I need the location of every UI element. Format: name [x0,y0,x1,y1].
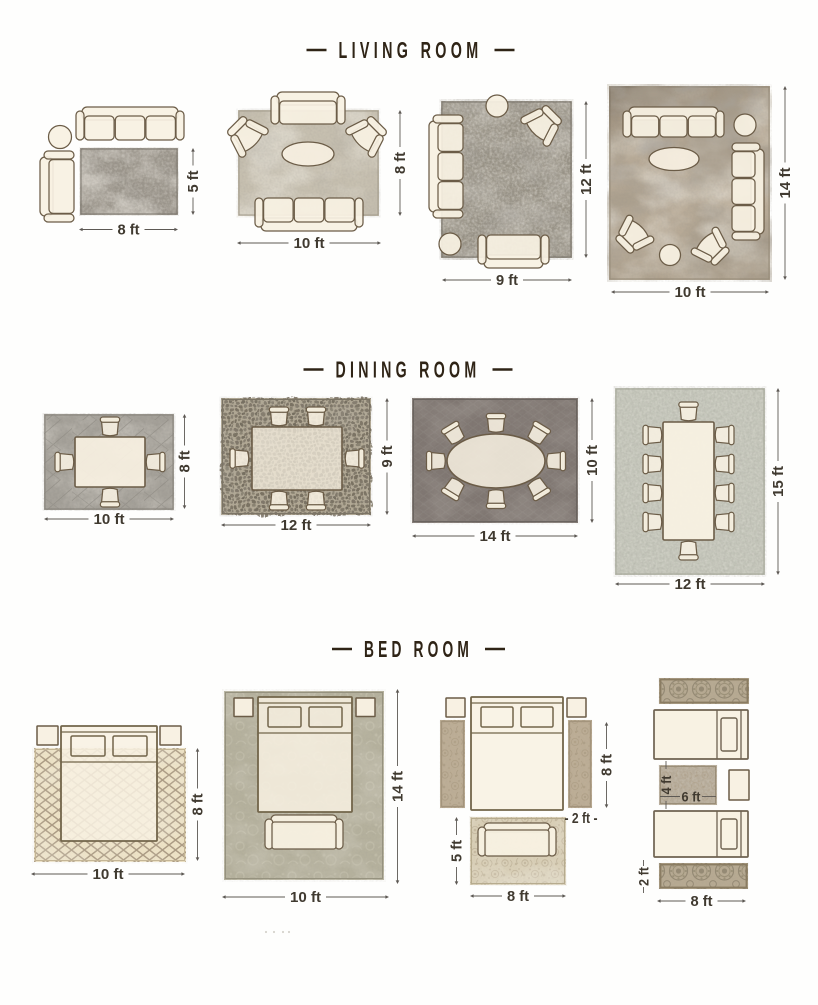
svg-text:8 ft: 8 ft [507,888,529,905]
svg-text:DINING ROOM: DINING ROOM [336,357,481,383]
svg-text:8 ft: 8 ft [177,450,194,472]
svg-text:BED ROOM: BED ROOM [364,636,473,662]
svg-text:LIVING ROOM: LIVING ROOM [339,37,483,63]
svg-text:- 2 ft -: - 2 ft - [565,810,598,827]
svg-text:10 ft: 10 ft [94,511,125,528]
svg-text:6 ft: 6 ft [682,790,701,805]
svg-text:8 ft: 8 ft [190,793,207,815]
svg-text:12 ft: 12 ft [578,164,595,195]
svg-text:10 ft: 10 ft [290,889,321,906]
svg-text:8 ft: 8 ft [118,222,140,239]
svg-text:10 ft: 10 ft [584,445,601,476]
svg-text:10 ft: 10 ft [294,235,325,252]
svg-text:12 ft: 12 ft [675,576,706,593]
svg-text:8 ft: 8 ft [691,893,713,910]
svg-text:9 ft: 9 ft [379,445,396,467]
svg-text:8 ft: 8 ft [392,152,409,174]
svg-text:10 ft: 10 ft [675,284,706,301]
svg-text:10 ft: 10 ft [93,866,124,883]
svg-text:14 ft: 14 ft [390,771,407,802]
svg-text:15 ft: 15 ft [770,466,787,497]
svg-text:14 ft: 14 ft [480,528,511,545]
svg-text:9 ft: 9 ft [496,272,518,289]
svg-text:8 ft: 8 ft [599,754,616,776]
svg-text:4 ft: 4 ft [659,775,674,794]
svg-text:2 ft: 2 ft [637,867,652,886]
svg-text:14 ft: 14 ft [777,167,794,198]
svg-text:12 ft: 12 ft [281,517,312,534]
svg-text:5 ft: 5 ft [449,840,466,862]
svg-text:5 ft: 5 ft [185,170,202,192]
